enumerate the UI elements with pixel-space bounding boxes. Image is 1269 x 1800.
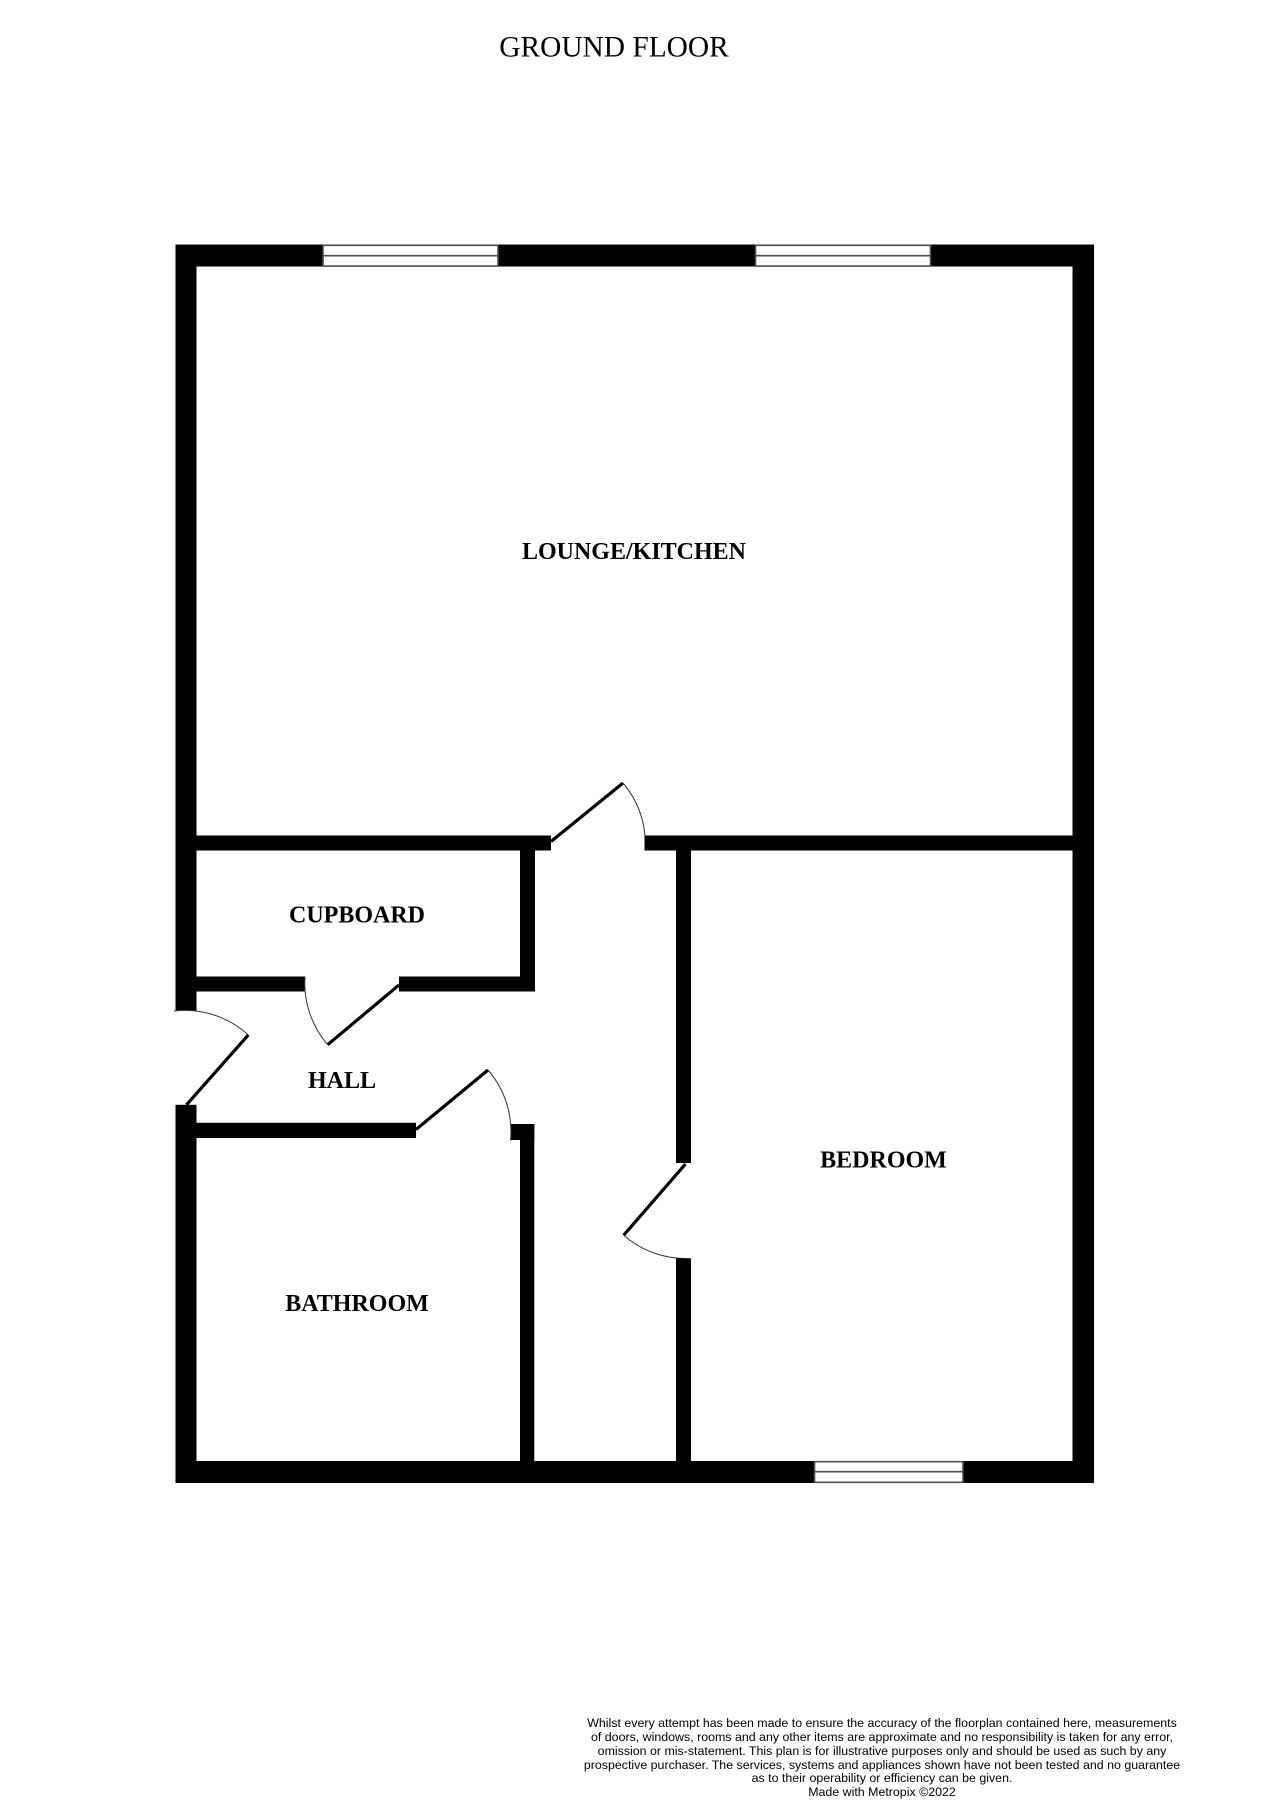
svg-text:LOUNGE/KITCHEN: LOUNGE/KITCHEN bbox=[522, 539, 747, 565]
svg-text:GROUND FLOOR: GROUND FLOOR bbox=[499, 32, 729, 64]
svg-text:BATHROOM: BATHROOM bbox=[285, 1291, 429, 1317]
svg-text:BEDROOM: BEDROOM bbox=[820, 1147, 947, 1173]
svg-text:HALL: HALL bbox=[308, 1068, 376, 1094]
svg-text:CUPBOARD: CUPBOARD bbox=[289, 903, 425, 929]
